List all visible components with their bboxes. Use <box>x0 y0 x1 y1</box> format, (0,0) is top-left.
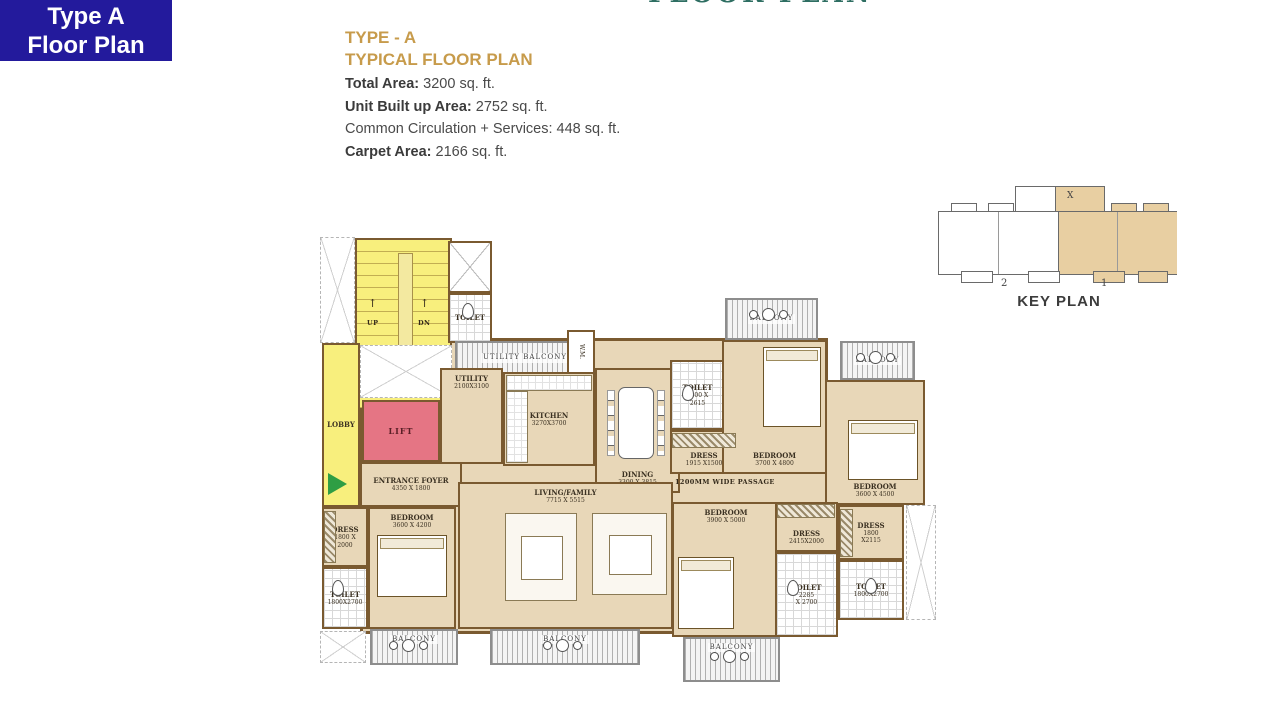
room-void-mid <box>360 345 452 398</box>
counter-icon <box>506 375 592 391</box>
room-dims: 1800 X 2000 <box>334 534 355 548</box>
key-plan-shape <box>1138 271 1168 283</box>
stat-row-0: Total Area: 3200 sq. ft. <box>345 76 620 92</box>
room-name: DINING <box>622 470 653 479</box>
room-dims: 3700 X 4800 <box>755 460 794 467</box>
key-plan-label-2: 2 <box>1001 278 1007 289</box>
room-name: BEDROOM <box>704 508 747 517</box>
room-dims: 2100X3100 <box>454 383 489 390</box>
plan-title: TYPE - A TYPICAL FLOOR PLAN <box>345 27 533 71</box>
room-name: BEDROOM <box>753 451 796 460</box>
key-plan-divider <box>998 212 999 274</box>
room-name: DRESS <box>857 521 884 530</box>
sofa-icon <box>592 513 667 595</box>
chaircol-icon <box>607 390 615 456</box>
plan-title-line-2: TYPICAL FLOOR PLAN <box>345 49 533 71</box>
bed-icon <box>678 557 734 629</box>
area-stats: Total Area: 3200 sq. ft.Unit Built up Ar… <box>345 76 620 166</box>
room-toilet-br-1: TOILET2285 X 2700 <box>775 552 838 637</box>
stat-label: Common Circulation + Services: <box>345 121 553 137</box>
btable-icon <box>402 639 415 652</box>
plan-title-line-1: TYPE - A <box>345 27 533 49</box>
entry-icon <box>328 473 347 495</box>
wc-icon <box>682 385 694 401</box>
room-dims: 3600 X 4500 <box>856 491 895 498</box>
btable-icon <box>556 639 569 652</box>
page: Type A Floor Plan FLOOR PLAN TYPE - A TY… <box>0 0 1280 720</box>
wc-icon <box>865 578 877 594</box>
stat-label: Total Area: <box>345 76 419 92</box>
room-dims: 3600 X 4200 <box>393 522 432 529</box>
stat-label: Carpet Area: <box>345 144 432 160</box>
room-name: LIFT <box>389 426 414 436</box>
sofa-icon <box>505 513 577 601</box>
room-dims: 3270X3700 <box>532 420 567 427</box>
room-utility: UTILITY2100X3100 <box>440 368 503 464</box>
room-dims: 1800 X2115 <box>861 530 881 544</box>
wc-icon <box>332 580 344 596</box>
room-dims: 3900 X 5000 <box>707 517 746 524</box>
room-name: UTILITY BALCONY <box>481 353 569 362</box>
chaircol-icon <box>657 390 665 456</box>
room-name: ENTRANCE FOYER <box>373 476 448 485</box>
room-void-bottom-left <box>320 631 366 663</box>
room-toilet-mid: TOILET1800 X 2615 <box>670 360 725 430</box>
floor-plan: TOILETLOBBYLIFTUTILITY BALCONYW.M.UTILIT… <box>320 235 938 697</box>
room-dims: 1915 X1500 <box>686 460 723 467</box>
room-name: UTILITY <box>455 374 488 383</box>
plan-text: UP <box>367 319 378 327</box>
stat-row-2: Common Circulation + Services: 448 sq. f… <box>345 121 620 137</box>
room-toilet-bottom-left: TOILET1800X2700 <box>322 567 368 629</box>
room-name: BEDROOM <box>390 513 433 522</box>
dtable-icon <box>618 387 654 459</box>
key-plan-shape <box>1028 271 1060 283</box>
plan-text: ↑ <box>420 297 430 310</box>
stat-value: 2752 sq. ft. <box>472 99 548 115</box>
key-plan-title: KEY PLAN <box>933 293 1185 310</box>
btable-icon <box>869 351 882 364</box>
key-plan-marker: X <box>1067 191 1073 201</box>
room-void-bottom-right <box>906 505 936 620</box>
room-wm: W.M. <box>567 330 595 374</box>
btable-icon <box>762 308 775 321</box>
plan-text: DN <box>418 319 430 327</box>
room-name: KITCHEN <box>530 411 569 420</box>
stat-row-3: Carpet Area: 2166 sq. ft. <box>345 144 620 160</box>
bed-icon <box>377 535 447 597</box>
bed-icon <box>848 420 918 480</box>
room-name: LOBBY <box>327 420 355 429</box>
stat-value: 2166 sq. ft. <box>432 144 508 160</box>
clipped-page-title: FLOOR PLAN <box>648 0 908 9</box>
clipped-page-title-text: FLOOR PLAN <box>648 0 872 9</box>
stat-value: 3200 sq. ft. <box>419 76 495 92</box>
room-dims: 7715 X 5515 <box>546 497 585 504</box>
ward-icon <box>840 509 853 557</box>
room-void-top-left <box>320 237 355 343</box>
wc-icon <box>787 580 799 596</box>
key-plan-label-1: 1 <box>1101 278 1107 289</box>
ward-icon <box>672 433 736 448</box>
plan-text: ↑ <box>368 297 378 310</box>
btable-icon <box>723 650 736 663</box>
key-plan-building <box>938 211 1177 275</box>
room-dims: 2285 X 2700 <box>796 592 817 606</box>
badge-line-2: Floor Plan <box>0 31 172 60</box>
stat-label: Unit Built up Area: <box>345 99 472 115</box>
room-lift: LIFT <box>362 400 440 462</box>
room-dims: 1800X2700 <box>328 599 363 606</box>
room-name: DRESS <box>793 529 820 538</box>
key-plan-shape <box>961 271 993 283</box>
badge-line-1: Type A <box>0 2 172 31</box>
key-plan-shape <box>1093 271 1125 283</box>
room-dims: 2415X2000 <box>789 538 824 545</box>
key-plan: X 2 1 KEY PLAN <box>933 183 1185 321</box>
counter-icon <box>506 391 528 463</box>
room-name: W.M. <box>577 344 585 359</box>
room-lift-shaft <box>448 241 492 293</box>
wc-icon <box>462 303 474 319</box>
type-a-badge: Type A Floor Plan <box>0 0 172 61</box>
room-entrance-foyer: ENTRANCE FOYER4350 X 1800 <box>360 462 462 507</box>
ward-icon <box>777 504 835 518</box>
bed-icon <box>763 347 821 427</box>
room-name: BEDROOM <box>853 482 896 491</box>
stat-value: 448 sq. ft. <box>553 121 621 137</box>
room-name: LIVING/FAMILY <box>534 488 596 497</box>
room-dims: 4350 X 1800 <box>392 485 431 492</box>
ward-icon <box>324 511 336 563</box>
key-plan-divider <box>1117 212 1118 274</box>
stat-row-1: Unit Built up Area: 2752 sq. ft. <box>345 99 620 115</box>
plan-text: 1200MM WIDE PASSAGE <box>675 478 775 486</box>
room-name: DRESS <box>690 451 717 460</box>
